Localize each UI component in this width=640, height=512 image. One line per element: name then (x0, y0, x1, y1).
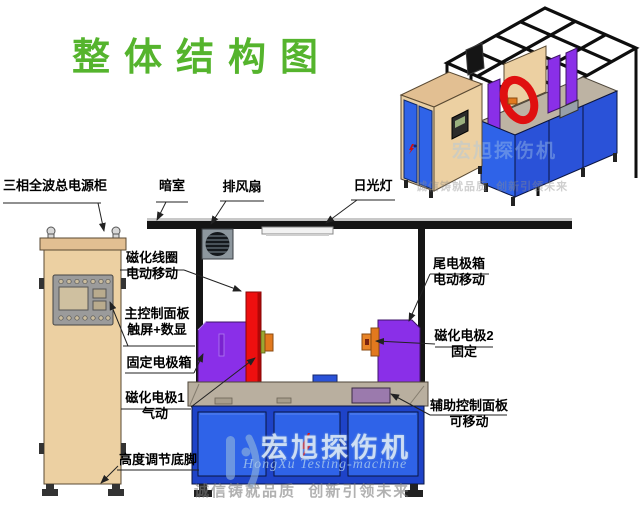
label-exhaust-fan: 排风扇 (219, 179, 265, 195)
watermark-brand-3d: 宏旭探伤机 (452, 136, 557, 163)
tail-electrode-box-2d (362, 320, 420, 383)
page-title: 整体结构图 (72, 26, 332, 81)
label-dark-room: 暗室 (155, 178, 189, 194)
magnetizing-coil-2d (246, 292, 273, 383)
canopy-fan-icon (466, 43, 484, 75)
label-fixed-electrode-box: 固定电极箱 (124, 355, 194, 371)
electrode2-bar (371, 328, 379, 356)
electrode1-green-pad (261, 331, 265, 353)
structure-diagram: 整体结构图 三相全波总电源柜 暗室 排风扇 日光灯 磁化线圈 电动移动 主控制面… (0, 0, 640, 512)
electrode1-orange-block (265, 334, 273, 351)
fluorescent-lamp-2d (262, 227, 333, 236)
label-fluorescent-lamp: 日光灯 (350, 178, 396, 194)
label-magnetizing-coil: 磁化线圈 电动移动 (116, 250, 188, 282)
exhaust-fan-2d (202, 229, 233, 259)
label-power-cabinet: 三相全波总电源柜 (3, 178, 107, 194)
cabinet-feet (42, 484, 124, 496)
label-magnetizing-electrode-1: 磁化电极1 气动 (118, 390, 192, 422)
isometric-machine-render (401, 8, 636, 206)
lifting-eyebolt-icon (47, 227, 120, 239)
label-main-control-panel: 主控制面板 触屏+数显 (118, 306, 196, 338)
power-cabinet-2d (39, 227, 126, 496)
watermark-slogan-3d: 诚信铸就品质 创新引领未来 (416, 178, 568, 194)
watermark-brand-en: HongXu Testing-machine (243, 457, 407, 473)
watermark-slogan: 诚信铸就品质 创新引领未来 (194, 480, 410, 501)
fixed-electrode-box-2d (198, 322, 246, 383)
label-tail-electrode-box: 尾电极箱 电动移动 (429, 256, 489, 288)
label-aux-control-panel: 辅助控制面板 可移动 (428, 398, 510, 430)
label-magnetizing-electrode-2: 磁化电极2 固定 (433, 328, 495, 360)
aux-control-panel-2d (352, 388, 390, 403)
label-height-adjust-feet: 高度调节底脚 (116, 452, 200, 468)
main-control-panel-2d (53, 275, 113, 325)
